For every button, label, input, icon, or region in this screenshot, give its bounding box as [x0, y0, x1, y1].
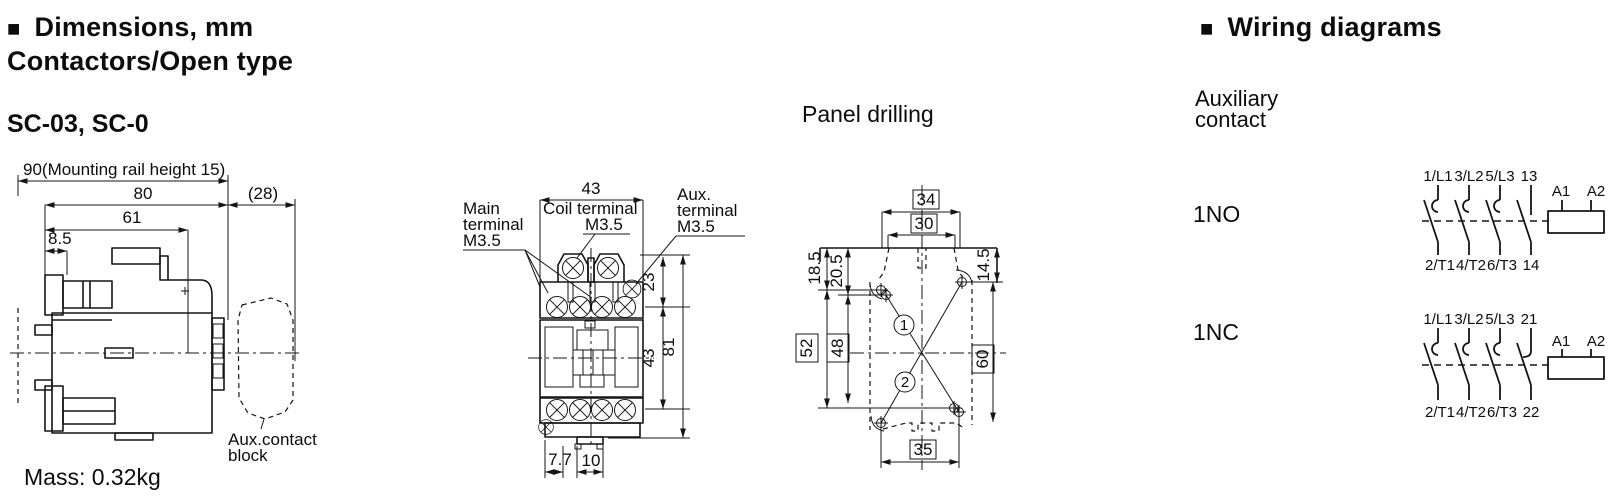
dim-7-7-text: 7.7 [548, 450, 572, 469]
dim-28-text: (28) [248, 184, 278, 203]
dimensions-title: Dimensions, mm [35, 12, 254, 42]
terminal-4t2: 4/T2 [1456, 257, 1486, 274]
dim-52-text: 52 [797, 339, 816, 358]
dimensions-subtitle: Contactors/Open type [7, 46, 293, 77]
aux-contact-block-outline: Aux.contact block [228, 298, 317, 465]
terminal-3l2: 3/L2 [1454, 311, 1483, 328]
diagram-label-1no: 1NO [1193, 201, 1240, 228]
terminal-1l1: 1/L1 [1423, 311, 1452, 328]
terminal-labels-top: 1/L1 3/L2 5/L3 13 [1423, 168, 1537, 185]
main-terminal-label-3: M3.5 [463, 231, 501, 250]
dim-8-5-text: 8.5 [48, 229, 72, 248]
side-view-drawing: 90(Mounting rail height 15) 80 (28) 61 8… [5, 148, 345, 488]
terminal-14: 14 [1523, 257, 1540, 274]
model-title: SC-03, SC-0 [7, 110, 149, 139]
dim-48-text: 48 [828, 339, 847, 358]
terminal-13: 13 [1521, 168, 1538, 185]
contactor-front-outline [528, 248, 654, 449]
dim-18-5-text: 18.5 [805, 251, 824, 284]
terminal-5l3: 5/L3 [1485, 168, 1514, 185]
contactor-side-outline [10, 248, 303, 440]
dimensions-header: ■Dimensions, mm [7, 12, 253, 43]
wiring-title: Wiring diagrams [1228, 12, 1442, 42]
dim-20-5-text: 20.5 [827, 254, 846, 287]
front-labels: Main terminal M3.5 Coil terminal M3.5 Au… [463, 185, 745, 298]
hole-marker-2: 2 [901, 374, 909, 391]
terminal-5l3: 5/L3 [1485, 311, 1514, 328]
terminal-2t1: 2/T1 [1425, 257, 1455, 274]
coil: A1 A2 [1548, 183, 1605, 233]
dim-rail-text: 90(Mounting rail height 15) [23, 160, 225, 179]
terminal-6t3: 6/T3 [1487, 404, 1517, 421]
terminal-22: 22 [1523, 404, 1540, 421]
coil-a1: A1 [1552, 333, 1570, 350]
dim-61-text: 61 [123, 208, 142, 227]
panel-drilling-drawing: 1 2 34 30 18.5 20.5 14.5 52 48 [770, 140, 1025, 485]
front-view-drawing: Main terminal M3.5 Coil terminal M3.5 Au… [430, 170, 752, 490]
terminal-2t1: 2/T1 [1425, 404, 1455, 421]
wiring-diagram-1no: 1/L1 3/L2 5/L3 13 A1 A2 2/T1 4/T2 6/T3 [1372, 158, 1619, 283]
dim-81-text: 81 [659, 338, 678, 357]
terminal-1l1: 1/L1 [1423, 168, 1452, 185]
wiring-header: ■Wiring diagrams [1200, 12, 1442, 43]
aux-block-label-2: block [228, 446, 268, 465]
section-bullet-icon: ■ [7, 16, 21, 41]
wiring-diagram-1nc: 1/L1 3/L2 5/L3 21 A1 A2 2/T1 4/T2 6/T3 [1372, 295, 1619, 425]
dim-10-text: 10 [582, 451, 601, 470]
auxiliary-contact-line1: Auxiliary [1195, 88, 1278, 109]
terminal-4t2: 4/T2 [1456, 404, 1486, 421]
terminal-labels-bottom: 2/T1 4/T2 6/T3 22 [1425, 404, 1539, 421]
dim-43-top-text: 43 [582, 179, 601, 198]
diagram-label-1nc: 1NC [1193, 319, 1239, 346]
coil-a1: A1 [1552, 183, 1570, 200]
aux-terminal-label-3: M3.5 [677, 217, 715, 236]
terminal-labels-top: 1/L1 3/L2 5/L3 21 [1423, 311, 1537, 328]
coil-terminal-label-2: M3.5 [585, 215, 623, 234]
datasheet-page: ■Dimensions, mm Contactors/Open type SC-… [0, 0, 1619, 503]
contact-poles [1424, 328, 1531, 400]
dim-34-text: 34 [917, 190, 936, 209]
terminal-labels-bottom: 2/T1 4/T2 6/T3 14 [1425, 257, 1539, 274]
auxiliary-contact-line2: contact [1195, 109, 1278, 130]
hole-marker-1: 1 [900, 317, 908, 334]
terminal-21: 21 [1521, 311, 1538, 328]
dim-60-text: 60 [973, 350, 992, 369]
panel-drilling-title: Panel drilling [802, 101, 934, 128]
dim-30-text: 30 [915, 214, 934, 233]
contact-poles [1424, 185, 1531, 255]
auxiliary-contact-label: Auxiliary contact [1195, 88, 1278, 130]
terminal-6t3: 6/T3 [1487, 257, 1517, 274]
dim-80-text: 80 [134, 184, 153, 203]
dim-35-text: 35 [914, 440, 933, 459]
coil-a2: A2 [1587, 183, 1605, 200]
side-dimensions: 90(Mounting rail height 15) 80 (28) 61 8… [18, 160, 295, 403]
section-bullet-icon: ■ [1200, 16, 1214, 41]
terminal-3l2: 3/L2 [1454, 168, 1483, 185]
coil-a2: A2 [1587, 333, 1605, 350]
dim-14-5-text: 14.5 [974, 248, 993, 281]
coil: A1 A2 [1548, 333, 1605, 379]
